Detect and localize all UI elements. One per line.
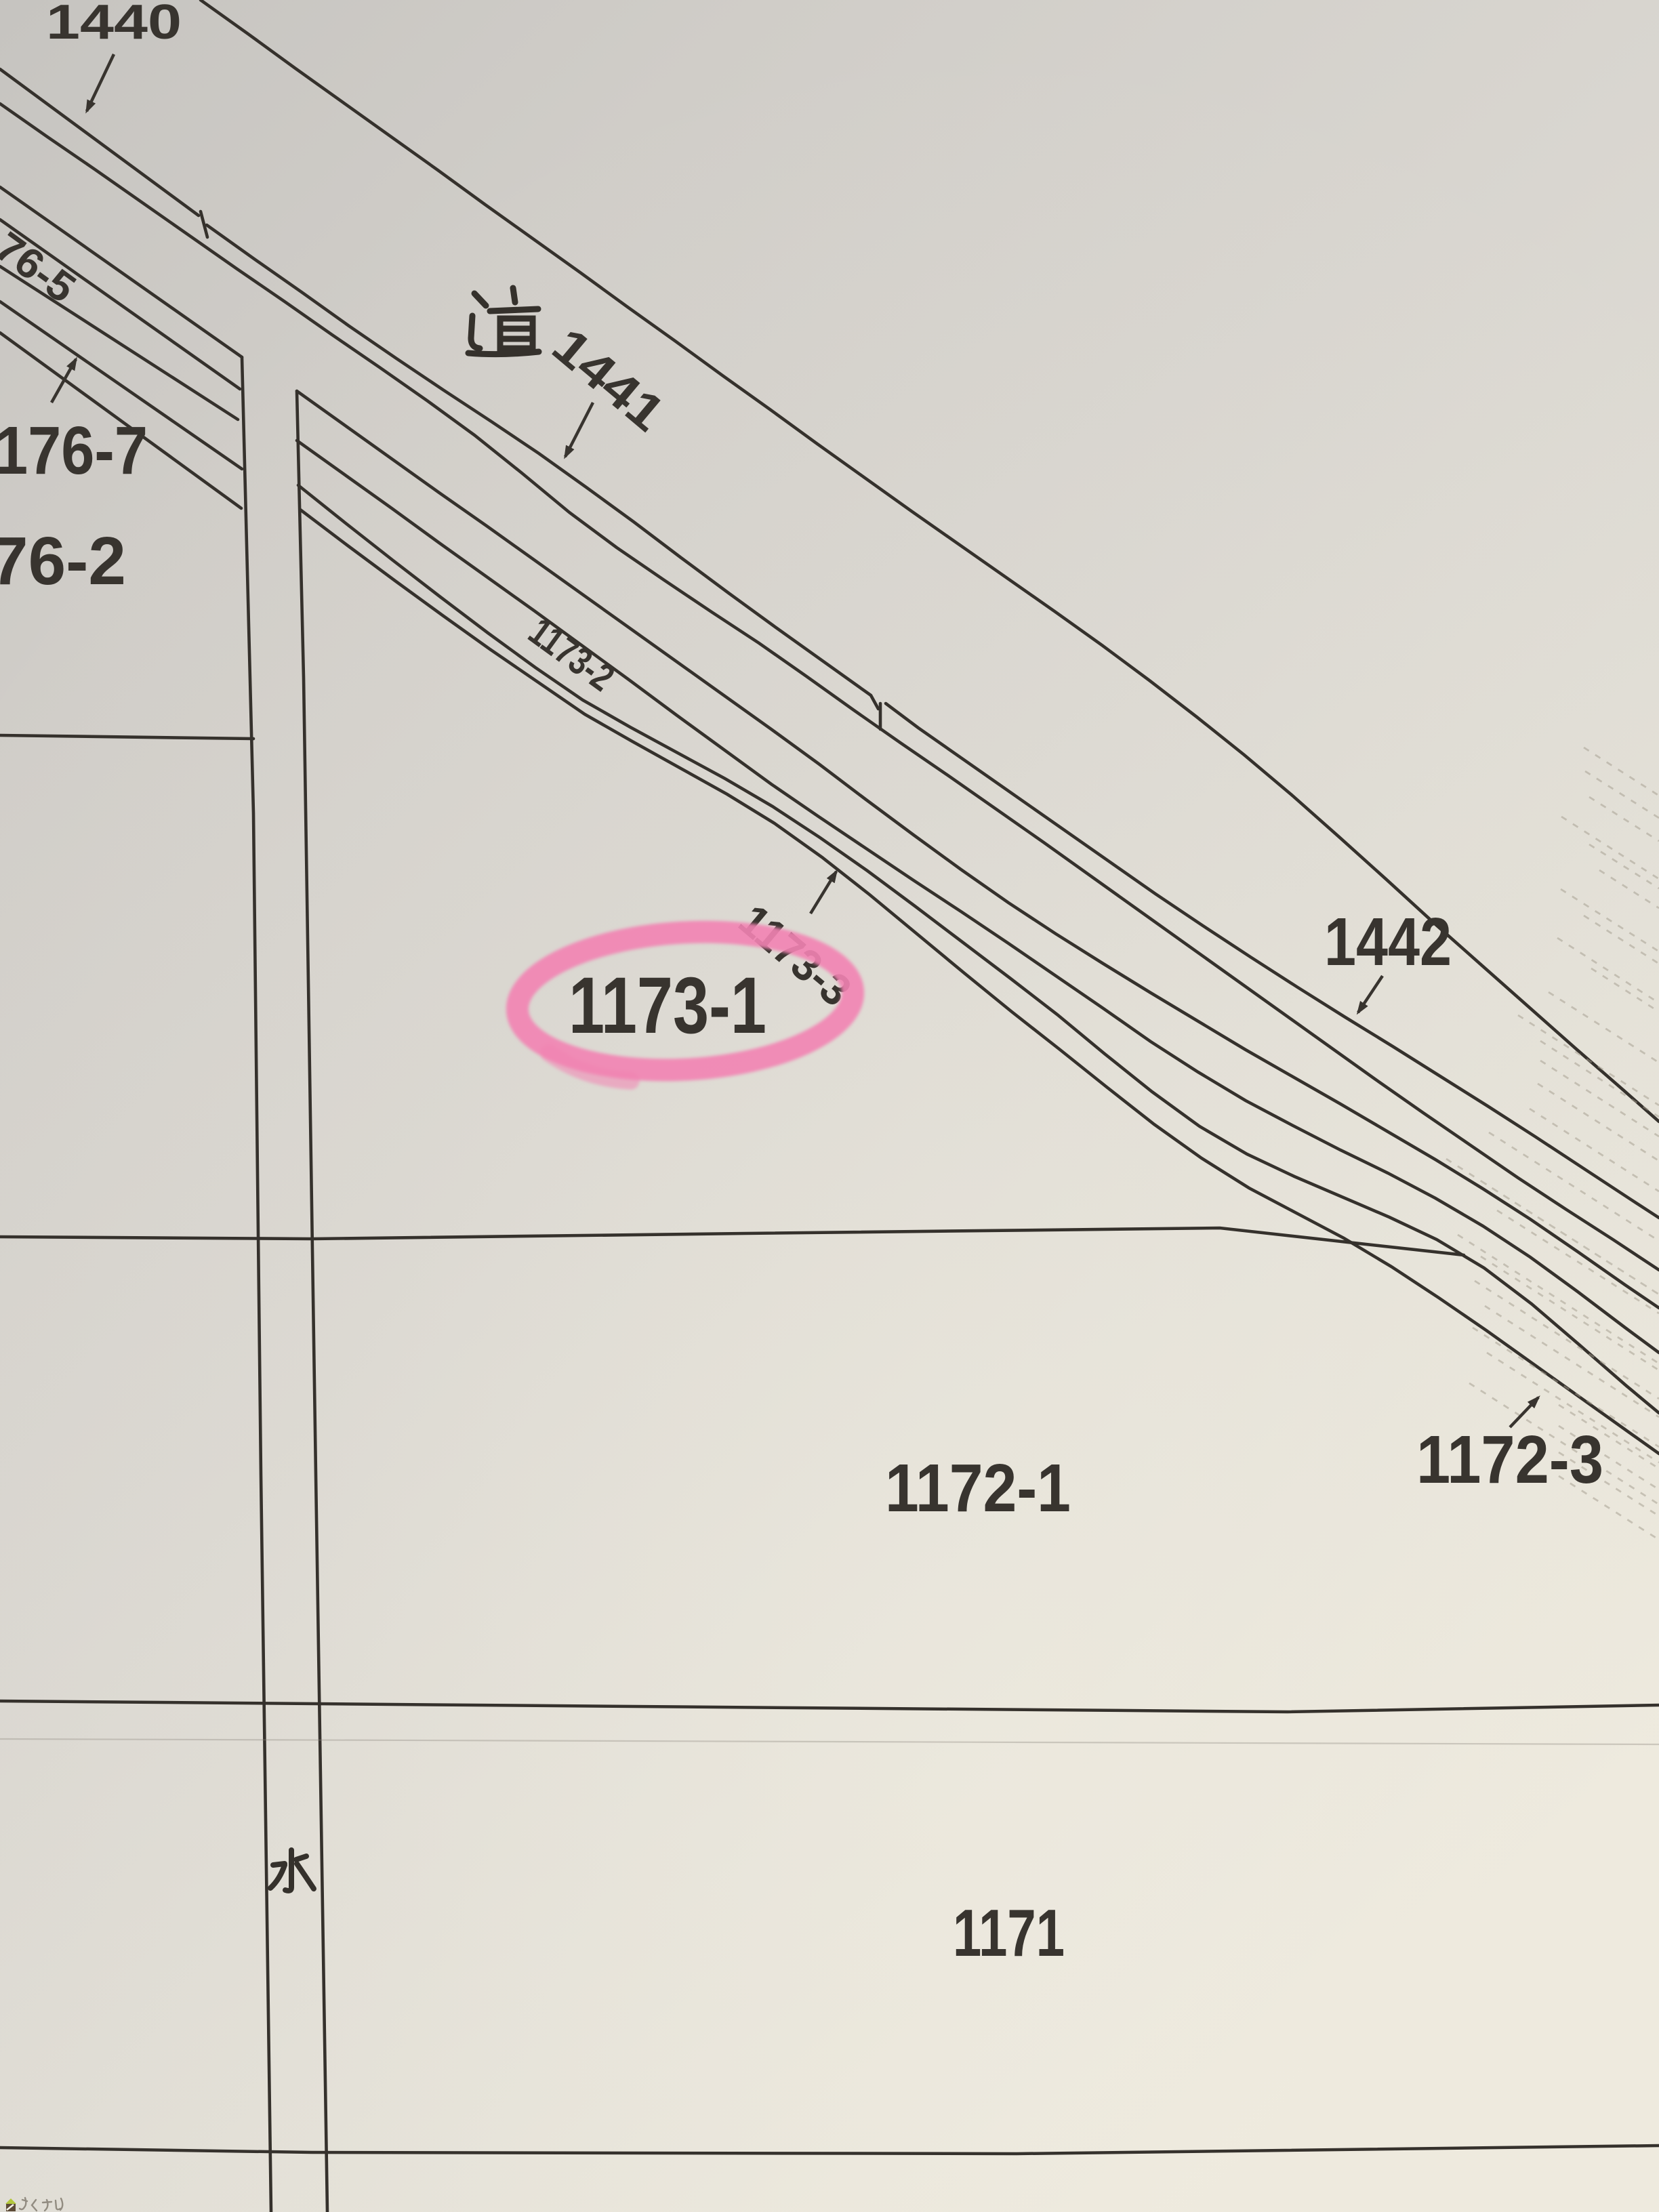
svg-text:1172-3: 1172-3 bbox=[1416, 1422, 1603, 1498]
svg-text:1173-1: 1173-1 bbox=[569, 961, 766, 1050]
svg-text:1440: 1440 bbox=[46, 0, 182, 49]
svg-text:1442: 1442 bbox=[1324, 904, 1452, 980]
svg-text:76-2: 76-2 bbox=[0, 523, 126, 599]
svg-text:1171: 1171 bbox=[953, 1896, 1065, 1970]
svg-text:176-7: 176-7 bbox=[0, 413, 148, 489]
svg-text:1172-1: 1172-1 bbox=[885, 1450, 1071, 1526]
